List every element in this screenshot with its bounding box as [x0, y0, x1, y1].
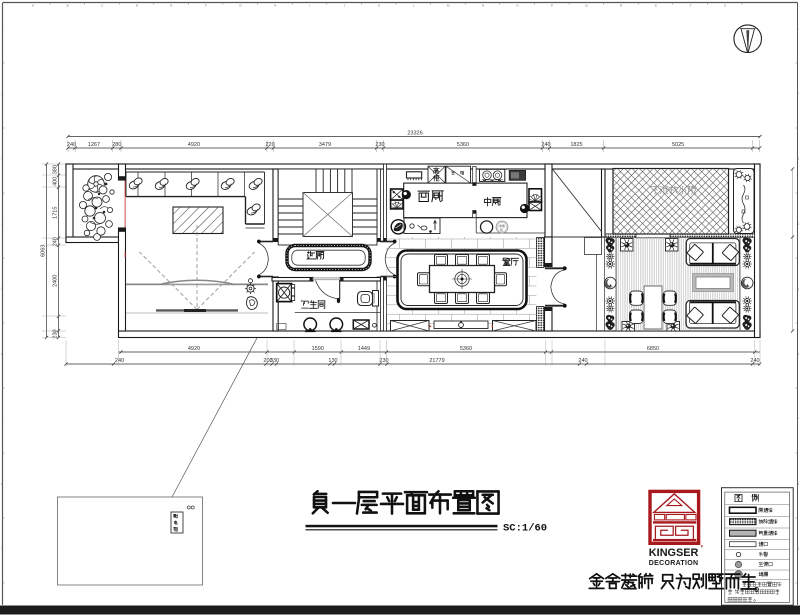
svg-text:F: F [205, 4, 207, 8]
svg-text:23326: 23326 [407, 131, 422, 137]
svg-text:240: 240 [67, 142, 76, 148]
svg-text:1: 1 [797, 27, 799, 31]
svg-text:7: 7 [1, 417, 3, 421]
svg-text:SC:1/60: SC:1/60 [503, 523, 547, 535]
svg-text:8: 8 [1, 482, 3, 486]
svg-text:H: H [274, 4, 276, 8]
svg-text:6063: 6063 [40, 245, 46, 257]
svg-text:B: B [67, 4, 69, 8]
svg-text:1590: 1590 [312, 346, 324, 352]
svg-text:6850: 6850 [647, 346, 659, 352]
svg-text:1825: 1825 [570, 142, 582, 148]
svg-text:280: 280 [112, 142, 121, 148]
svg-text:8: 8 [797, 482, 799, 486]
svg-text:21779: 21779 [429, 358, 444, 364]
svg-text:3: 3 [797, 157, 799, 161]
svg-text:2: 2 [797, 92, 799, 96]
svg-text:3479: 3479 [319, 142, 331, 148]
svg-text:1: 1 [1, 27, 3, 31]
svg-text:I: I [309, 4, 310, 8]
svg-text:4920: 4920 [188, 142, 200, 148]
svg-text:5: 5 [797, 287, 799, 291]
svg-text:6: 6 [1, 352, 3, 356]
svg-text:DECORATION: DECORATION [649, 560, 699, 567]
svg-text:2: 2 [1, 92, 3, 96]
svg-text:330: 330 [270, 358, 279, 364]
svg-text:N: N [482, 4, 484, 8]
svg-text:T: T [689, 4, 691, 8]
svg-text:130: 130 [328, 358, 337, 364]
svg-text:7: 7 [797, 417, 799, 421]
svg-text:4: 4 [1, 222, 3, 226]
svg-text:240: 240 [541, 142, 550, 148]
svg-text:K: K [378, 4, 380, 8]
svg-text:1715: 1715 [52, 207, 58, 219]
svg-text:E: E [170, 4, 172, 8]
svg-text:3: 3 [1, 157, 3, 161]
svg-text:S: S [655, 4, 657, 8]
svg-text:6: 6 [797, 352, 799, 356]
svg-text:4920: 4920 [188, 346, 200, 352]
svg-text:230: 230 [52, 329, 58, 338]
svg-text:240: 240 [115, 358, 124, 364]
svg-text:': ' [701, 544, 703, 554]
svg-text:380: 380 [52, 165, 58, 174]
svg-text:1449: 1449 [358, 346, 370, 352]
svg-text:230: 230 [379, 358, 388, 364]
svg-text:9: 9 [797, 547, 799, 551]
svg-text:240: 240 [578, 358, 587, 364]
svg-text:1267: 1267 [88, 142, 100, 148]
svg-text:2400: 2400 [52, 275, 58, 287]
svg-text:4: 4 [797, 222, 799, 226]
svg-text:A: A [32, 4, 34, 8]
svg-text:P: P [551, 4, 553, 8]
svg-text:5: 5 [1, 287, 3, 291]
svg-text:9: 9 [1, 547, 3, 551]
svg-text:5360: 5360 [460, 346, 472, 352]
svg-text:KINGSER: KINGSER [649, 547, 699, 559]
svg-text:U: U [724, 4, 726, 8]
svg-text:400: 400 [52, 177, 58, 186]
svg-text:5360: 5360 [457, 142, 469, 148]
svg-text:5025: 5025 [672, 142, 684, 148]
